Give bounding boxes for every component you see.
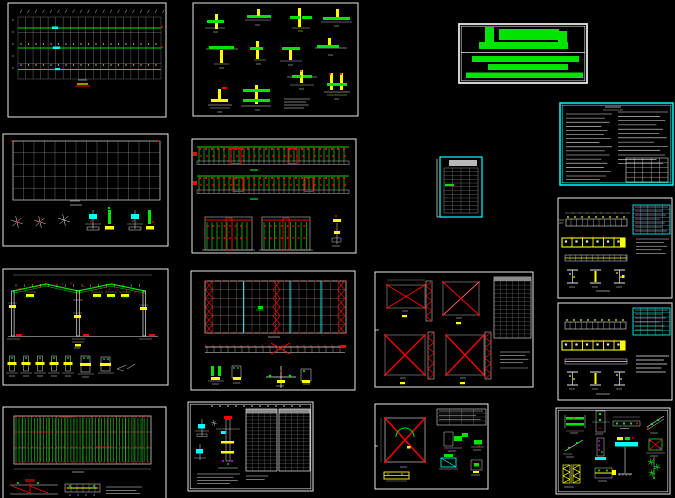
dot (330, 280, 331, 281)
ladder-diag (426, 291, 432, 296)
shape (77, 291, 80, 336)
dot (460, 298, 462, 300)
dot (83, 446, 84, 447)
dot (35, 64, 36, 65)
dot (127, 461, 128, 462)
dot (27, 446, 28, 447)
dot (67, 446, 68, 447)
dot (268, 298, 269, 299)
ladder-diag (426, 301, 432, 306)
dot (118, 43, 119, 44)
dot (630, 423, 632, 425)
ladder-diag (428, 353, 434, 358)
dot (278, 155, 280, 157)
dot (386, 307, 388, 309)
dot (217, 177, 219, 179)
dot (596, 343, 598, 345)
ladder-diag (428, 337, 434, 342)
dot (319, 148, 321, 150)
dot (240, 345, 241, 346)
dot (100, 288, 101, 289)
dot (148, 64, 149, 65)
dot (229, 225, 231, 227)
dot (596, 240, 598, 242)
shape (290, 16, 300, 19)
dot (331, 177, 333, 179)
dot (80, 64, 81, 65)
shape (89, 214, 97, 219)
shape (100, 363, 111, 366)
shape (595, 373, 597, 384)
ladder-diag (485, 358, 491, 363)
dot (158, 140, 160, 142)
ladder-diag (573, 479, 580, 483)
dot (19, 416, 20, 417)
dot (259, 177, 261, 179)
dot (139, 461, 140, 462)
material-list-table[interactable] (437, 157, 482, 217)
dot (95, 43, 96, 44)
dot (16, 221, 18, 223)
mark (50, 10, 52, 13)
dot (20, 43, 21, 44)
shape (12, 291, 15, 336)
dot (37, 482, 39, 484)
dot (229, 280, 230, 281)
ladder-diag (426, 296, 432, 301)
mark (155, 10, 157, 13)
dot (93, 485, 95, 487)
dot (125, 43, 126, 44)
dot (291, 405, 292, 406)
line (117, 365, 126, 369)
dot (78, 495, 79, 496)
ladder-diag (563, 476, 570, 480)
roof-bracing-plan[interactable] (191, 271, 355, 390)
dot (71, 431, 72, 432)
dot (13, 20, 14, 21)
dot (607, 240, 609, 242)
line (441, 458, 456, 467)
dot (107, 358, 109, 360)
dot (119, 416, 120, 417)
dot (206, 184, 208, 186)
drawing-surface (0, 0, 675, 498)
shape (566, 417, 584, 420)
dot (601, 319, 603, 321)
dot (314, 155, 316, 157)
dot (213, 280, 214, 281)
dot (568, 447, 570, 449)
dot (330, 332, 331, 333)
dot (230, 184, 232, 186)
dot (574, 216, 576, 218)
dot (212, 184, 214, 186)
dot (278, 184, 280, 186)
dot (19, 461, 20, 462)
dot (603, 339, 604, 340)
dot (613, 339, 614, 340)
dot (320, 184, 322, 186)
dot (211, 148, 213, 150)
dot (424, 334, 426, 336)
cross-brace-detail[interactable] (375, 404, 488, 489)
dot (384, 334, 386, 336)
dot (581, 216, 583, 218)
dot (212, 155, 214, 157)
shape (323, 17, 350, 20)
shape (50, 362, 59, 365)
shape (330, 73, 333, 90)
dot (119, 431, 120, 432)
shape (336, 9, 339, 17)
dot (587, 213, 588, 214)
dot (50, 43, 51, 44)
dot (39, 357, 41, 359)
dot (343, 148, 345, 150)
dot (235, 405, 236, 406)
dot (571, 339, 572, 340)
aster-line (648, 460, 653, 465)
shape (317, 45, 339, 48)
dot (287, 237, 289, 239)
dot (401, 473, 403, 475)
shape (258, 306, 263, 309)
dot (608, 213, 609, 214)
dot (269, 375, 271, 377)
dot (307, 298, 308, 299)
dot (224, 237, 226, 239)
line (117, 369, 124, 371)
dot (94, 495, 95, 496)
bracing-details[interactable] (375, 272, 533, 387)
dot (259, 148, 261, 150)
dot (126, 296, 127, 297)
dot (131, 446, 132, 447)
dot (200, 155, 202, 157)
dot (245, 315, 246, 316)
dot (218, 155, 220, 157)
shape (444, 454, 453, 457)
general-notes-sheet[interactable] (560, 103, 673, 185)
mark (65, 10, 67, 13)
dot (275, 237, 277, 239)
dot (221, 315, 222, 316)
dot (573, 213, 574, 214)
dot (298, 225, 300, 227)
sheet-border (8, 3, 166, 117)
dot (240, 225, 242, 227)
dot (223, 148, 225, 150)
dot (127, 416, 128, 417)
shape (211, 99, 228, 102)
dot (103, 64, 104, 65)
dot (205, 177, 207, 179)
dot (265, 148, 267, 150)
dot (384, 374, 386, 376)
dot (622, 319, 624, 321)
dot (303, 370, 305, 372)
dot (98, 296, 99, 297)
dot (289, 177, 291, 179)
dot (103, 431, 104, 432)
dot (43, 416, 44, 417)
dot (620, 378, 622, 380)
dot (276, 332, 277, 333)
shape (279, 409, 310, 471)
dot (25, 357, 27, 359)
dot (629, 213, 630, 214)
dot (110, 43, 111, 44)
dot (296, 345, 297, 346)
dot (260, 315, 261, 316)
crane-beam-detail-1[interactable] (558, 198, 672, 298)
dot (55, 446, 56, 447)
shape (8, 362, 17, 365)
dot (623, 423, 625, 425)
aster-line (212, 421, 216, 425)
dot (247, 177, 249, 179)
dot (244, 332, 245, 333)
shape (218, 366, 221, 376)
dot (588, 216, 590, 218)
mark (140, 10, 142, 13)
dot (110, 64, 111, 65)
dot (103, 416, 104, 417)
shape (327, 83, 347, 86)
dot (598, 445, 600, 447)
dot (246, 237, 248, 239)
dot (71, 446, 72, 447)
dot (337, 177, 339, 179)
dot (271, 177, 273, 179)
ladder-diag (485, 353, 491, 358)
shape (445, 184, 454, 186)
shape (472, 56, 579, 62)
dot (147, 461, 148, 462)
ladder-diag (573, 476, 580, 480)
dot (651, 423, 653, 425)
dot (281, 237, 283, 239)
dot (226, 345, 227, 346)
crane-beam-detail-2[interactable] (558, 303, 672, 400)
dot (620, 276, 622, 278)
line (12, 486, 30, 493)
dot (275, 225, 277, 227)
mark (95, 10, 97, 13)
dot (79, 461, 80, 462)
aster-line (654, 465, 659, 470)
dot (65, 487, 66, 488)
dot (248, 155, 250, 157)
dot (143, 461, 144, 462)
mark (28, 10, 30, 13)
dot (213, 332, 214, 333)
ladder-diag (485, 337, 491, 342)
dot (252, 280, 253, 281)
dot (39, 221, 41, 223)
shape (207, 20, 224, 23)
purlin-layout-plan[interactable] (3, 407, 166, 498)
dot (338, 155, 340, 157)
dot (338, 298, 339, 299)
dot (135, 446, 136, 447)
dot (219, 345, 220, 346)
dot (424, 284, 426, 286)
dot (87, 446, 88, 447)
dot (649, 440, 651, 442)
sheet-border (375, 404, 488, 489)
dot (87, 461, 88, 462)
dot (595, 216, 597, 218)
dot (135, 461, 136, 462)
dot (155, 43, 156, 44)
dot (39, 461, 40, 462)
shape (131, 214, 139, 219)
dot (13, 56, 14, 57)
dot (602, 216, 604, 218)
shape (340, 345, 346, 348)
dot (307, 148, 309, 150)
misc-connection-details[interactable] (556, 408, 670, 494)
dot (122, 296, 123, 297)
dot (573, 417, 575, 419)
shape (243, 99, 270, 102)
dot (206, 155, 208, 157)
green-hatch-thumbnail[interactable] (459, 24, 587, 83)
dot (35, 446, 36, 447)
dot (71, 461, 72, 462)
dot (199, 177, 201, 179)
dot (268, 315, 269, 316)
dot (647, 427, 649, 429)
dot (13, 32, 14, 33)
shape (479, 42, 568, 49)
shape (595, 271, 597, 282)
dot (63, 446, 64, 447)
shape (53, 47, 60, 50)
dot (594, 213, 595, 214)
shape (80, 363, 91, 366)
shape (36, 362, 45, 365)
ladder-diag (426, 316, 432, 321)
dot (300, 70, 302, 72)
dot (387, 473, 389, 475)
dot (615, 213, 616, 214)
shape (282, 47, 300, 50)
dot (622, 213, 623, 214)
wall-girt-elevations[interactable] (192, 139, 356, 253)
dot (155, 64, 156, 65)
dot (119, 446, 120, 447)
dot (308, 155, 310, 157)
dot (73, 43, 74, 44)
dot (31, 416, 32, 417)
dot (582, 339, 583, 340)
dot (92, 287, 93, 288)
shape (25, 479, 35, 482)
portal-frame-elevation[interactable] (3, 269, 168, 385)
dot (599, 427, 600, 428)
mark (73, 10, 75, 13)
dot (264, 237, 266, 239)
shape (474, 463, 479, 467)
dot (79, 416, 80, 417)
table-border (633, 205, 670, 234)
dot (483, 334, 485, 336)
dot (108, 207, 110, 209)
dot (20, 64, 21, 65)
dot (276, 280, 277, 281)
dot (207, 225, 209, 227)
dot (83, 416, 84, 417)
dot (227, 463, 229, 465)
dot (99, 461, 100, 462)
dot (322, 332, 323, 333)
dot (338, 315, 339, 316)
dot (143, 446, 144, 447)
cad-model-space[interactable] (0, 0, 675, 498)
dot (205, 280, 206, 281)
dot (330, 298, 331, 299)
connection-details[interactable] (193, 3, 358, 116)
line (647, 416, 664, 427)
shape (562, 238, 625, 247)
dot (248, 184, 250, 186)
dot (133, 64, 134, 65)
dot (95, 431, 96, 432)
dot (218, 237, 220, 239)
dot (315, 332, 316, 333)
mark (118, 10, 120, 13)
dot (253, 148, 255, 150)
dot (260, 280, 261, 281)
dot (616, 374, 618, 376)
dot (424, 374, 426, 376)
dot (63, 461, 64, 462)
dot (315, 315, 316, 316)
foundation-anchor-plan[interactable] (3, 134, 168, 246)
dot (118, 64, 119, 65)
line (30, 486, 48, 493)
anchor-bolt-schedule[interactable] (188, 402, 313, 491)
shape (333, 219, 341, 222)
dot (586, 343, 588, 345)
roof-framing-plan[interactable] (8, 3, 166, 117)
dot (218, 184, 220, 186)
dot (582, 236, 583, 237)
dot (323, 298, 324, 299)
dot (308, 184, 310, 186)
shape (209, 46, 234, 49)
dot (301, 148, 303, 150)
dot (205, 332, 206, 333)
dot (13, 68, 14, 69)
dot (617, 240, 619, 242)
dot (291, 298, 292, 299)
dot (235, 237, 237, 239)
mark (125, 10, 127, 13)
dot (623, 216, 625, 218)
dot (252, 315, 253, 316)
dot (213, 315, 214, 316)
shape (289, 50, 292, 60)
dot (569, 375, 571, 377)
shape (148, 210, 151, 224)
shape (26, 294, 34, 297)
dot (270, 237, 272, 239)
shape (226, 419, 230, 461)
